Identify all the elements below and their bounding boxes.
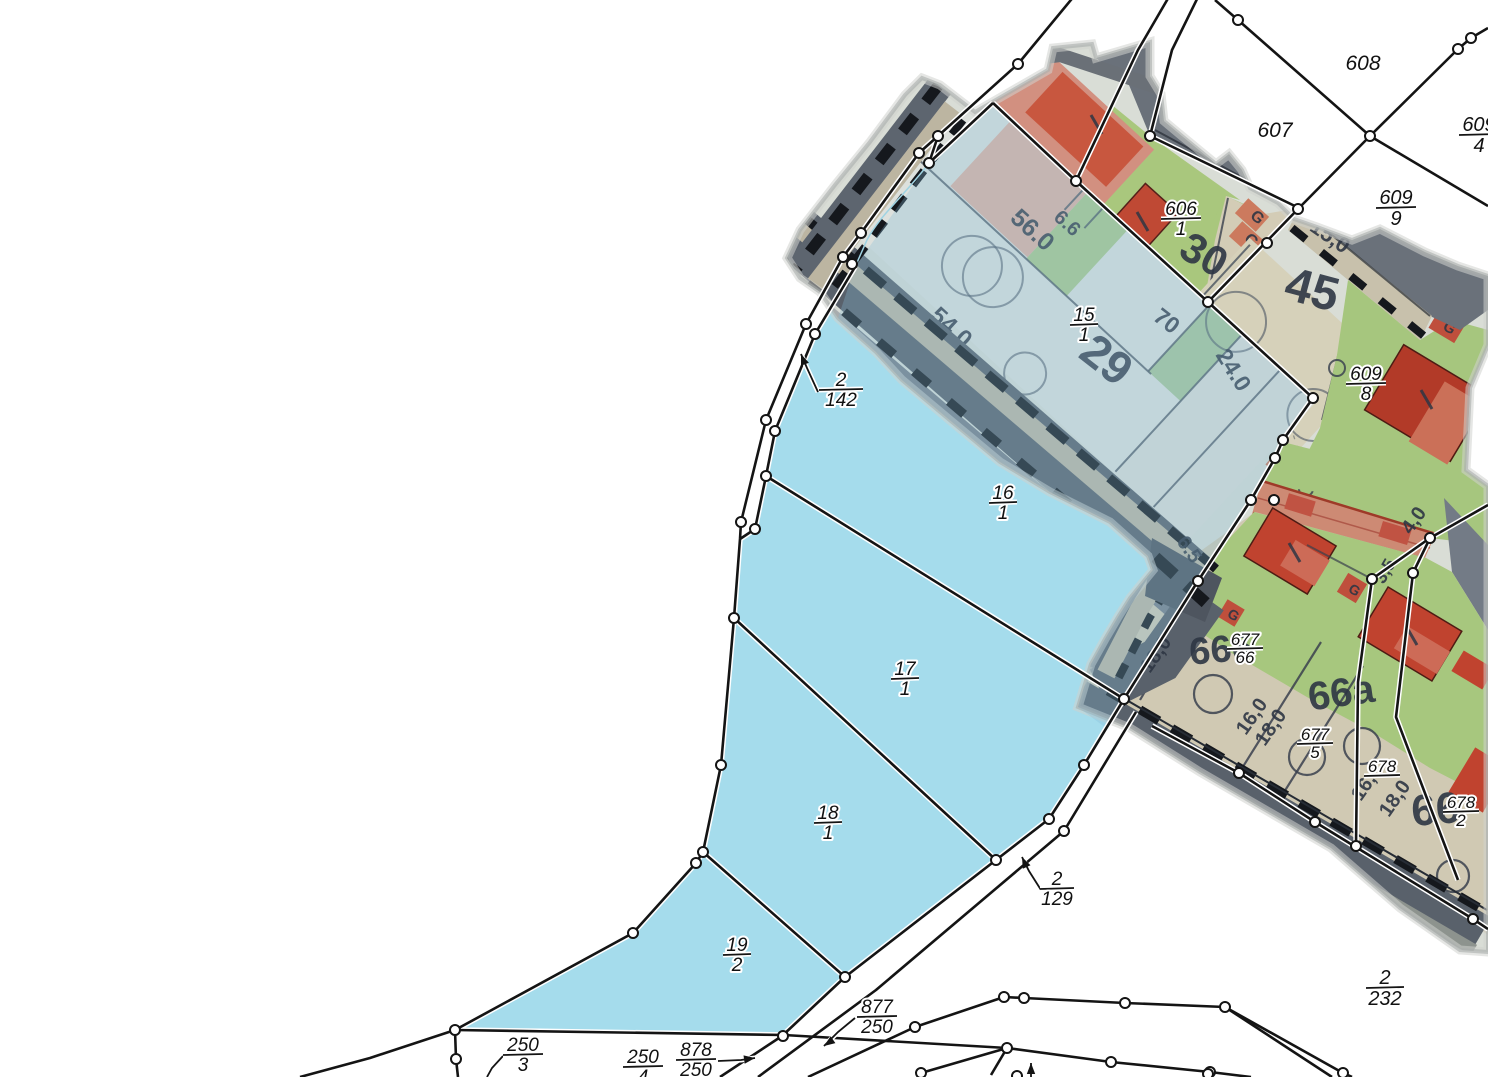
svg-text:142: 142 [825, 390, 857, 411]
svg-text:9: 9 [1390, 208, 1401, 230]
svg-text:1: 1 [900, 679, 911, 700]
svg-text:4: 4 [1473, 135, 1484, 157]
svg-text:232: 232 [1367, 988, 1401, 1010]
svg-text:4: 4 [638, 1067, 649, 1077]
svg-text:129: 129 [1041, 889, 1073, 910]
svg-text:608: 608 [1345, 52, 1380, 75]
svg-text:2: 2 [1455, 811, 1466, 830]
svg-text:66a: 66a [1305, 667, 1378, 720]
svg-text:1: 1 [998, 503, 1009, 524]
svg-text:250: 250 [679, 1060, 712, 1077]
svg-text:1: 1 [823, 823, 834, 844]
svg-text:8: 8 [1361, 384, 1372, 405]
svg-text:1: 1 [1176, 219, 1187, 240]
svg-text:607: 607 [1257, 119, 1293, 142]
svg-text:5: 5 [1310, 743, 1320, 762]
svg-text:3: 3 [518, 1055, 529, 1076]
svg-text:2: 2 [731, 955, 743, 976]
svg-text:250: 250 [860, 1017, 893, 1038]
svg-text:66: 66 [1236, 648, 1255, 667]
svg-text:1: 1 [1079, 325, 1090, 346]
